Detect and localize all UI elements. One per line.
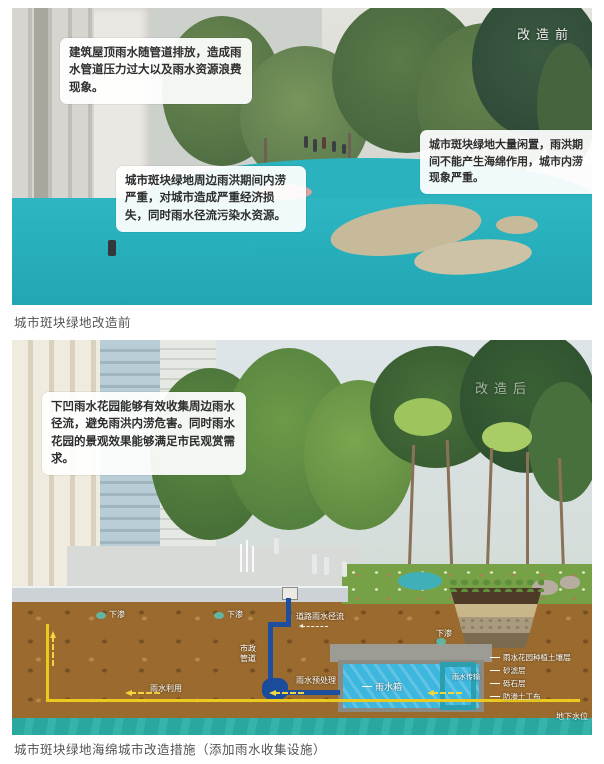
callout-roof-drainage: 建筑屋顶雨水随管道排放，造成雨水管道压力过大以及雨水资源浪费现象。 (60, 38, 252, 104)
caption-before: 城市斑块绿地改造前 (14, 312, 131, 331)
watermark-before: 改造前 (517, 24, 574, 43)
label-layer-gravel: 砾石层 (490, 678, 571, 689)
pedestrian (304, 136, 308, 148)
reuse-arrow-left (432, 692, 462, 694)
label-pretreatment: 雨水预处理 (296, 676, 336, 686)
reuse-arrow-up (52, 636, 54, 666)
rock (560, 576, 580, 589)
document-page: 改造前 建筑屋顶雨水随管道排放，造成雨水管道压力过大以及雨水资源浪费现象。 城市… (0, 0, 604, 764)
label-road-runoff: 道路雨水径流 (296, 612, 344, 622)
fountain-jet (246, 540, 248, 572)
photo-before-renovation: 改造前 建筑屋顶雨水随管道排放，造成雨水管道压力过大以及雨水资源浪费现象。 城市… (12, 8, 592, 305)
pedestrian (274, 538, 279, 554)
runoff-arrow (302, 626, 328, 627)
groundwater-band (12, 718, 592, 735)
palm-frond-highlight (394, 398, 452, 436)
label-layer-sand: 砂滤层 (490, 665, 571, 676)
label-groundwater: 地下水位 (556, 712, 588, 722)
label-tank-text: 雨水箱 (375, 680, 402, 693)
label-tank: 雨水箱 (362, 680, 402, 693)
leader-line (490, 696, 500, 697)
stream (398, 572, 442, 590)
rain-garden-sand-layer (450, 604, 542, 617)
sand-patch (496, 216, 538, 234)
label-infiltration: 下渗 (436, 629, 452, 639)
callout-rain-garden: 下凹雨水花园能够有效收集周边雨水径流，避免雨洪内涝危害。同时雨水花园的景观效果能… (42, 392, 246, 475)
photo-after-renovation: 下渗 下渗 下渗 道路雨水径流 市政管道 雨水预处理 雨水传输 雨水利用 地下水… (12, 340, 592, 735)
label-layer-soil: 雨水花园种植土壤层 (490, 652, 571, 663)
leader-line (490, 657, 500, 658)
reuse-line-vertical (46, 624, 49, 702)
leader-line (362, 686, 372, 687)
pedestrian (324, 557, 329, 575)
label-layer-liner: 防渗土工布 (490, 691, 571, 702)
label-rain-reuse: 雨水利用 (150, 684, 182, 694)
pedestrian (342, 144, 346, 154)
pedestrian (332, 141, 336, 152)
caption-after: 城市斑块绿地海绵城市改造措施（添加雨水收集设施） (14, 739, 326, 758)
seated-person (108, 240, 116, 256)
pump-unit (262, 678, 288, 700)
pedestrian (322, 137, 326, 149)
pedestrian (313, 139, 317, 152)
fountain-jet (240, 544, 242, 572)
watermark-after: 改造后 (475, 378, 532, 397)
pedestrian (312, 554, 317, 574)
leader-line (490, 683, 500, 684)
rain-garden-layer-labels: 雨水花园种植土壤层 砂滤层 砾石层 防渗土工布 (490, 652, 571, 702)
pipe-vertical (268, 622, 273, 684)
fountain-jet (252, 546, 254, 572)
pedestrian (342, 561, 347, 577)
infiltration-icon (214, 612, 224, 619)
infiltration-icon (96, 612, 106, 619)
label-transfer: 雨水传输 (452, 674, 480, 683)
infiltration-icon (436, 638, 446, 645)
reuse-arrow-left (274, 692, 304, 694)
callout-idle-greenspace: 城市斑块绿地大量闲置，雨洪期间不能产生海绵作用，城市内涝现象严重。 (420, 130, 592, 194)
rain-garden-gravel-layer (450, 617, 542, 633)
callout-flood-damage: 城市斑块绿地周边雨洪期间内涝严重，对城市造成严重经济损失，同时雨水径流污染水资源… (116, 166, 306, 232)
overflow-well (440, 662, 476, 710)
label-infiltration: 下渗 (109, 610, 125, 620)
rain-garden-plants (448, 578, 544, 592)
palm-trunk (526, 452, 529, 570)
label-infiltration: 下渗 (227, 610, 243, 620)
leader-line (490, 670, 500, 671)
label-municipal-pipe: 市政管道 (240, 644, 258, 664)
